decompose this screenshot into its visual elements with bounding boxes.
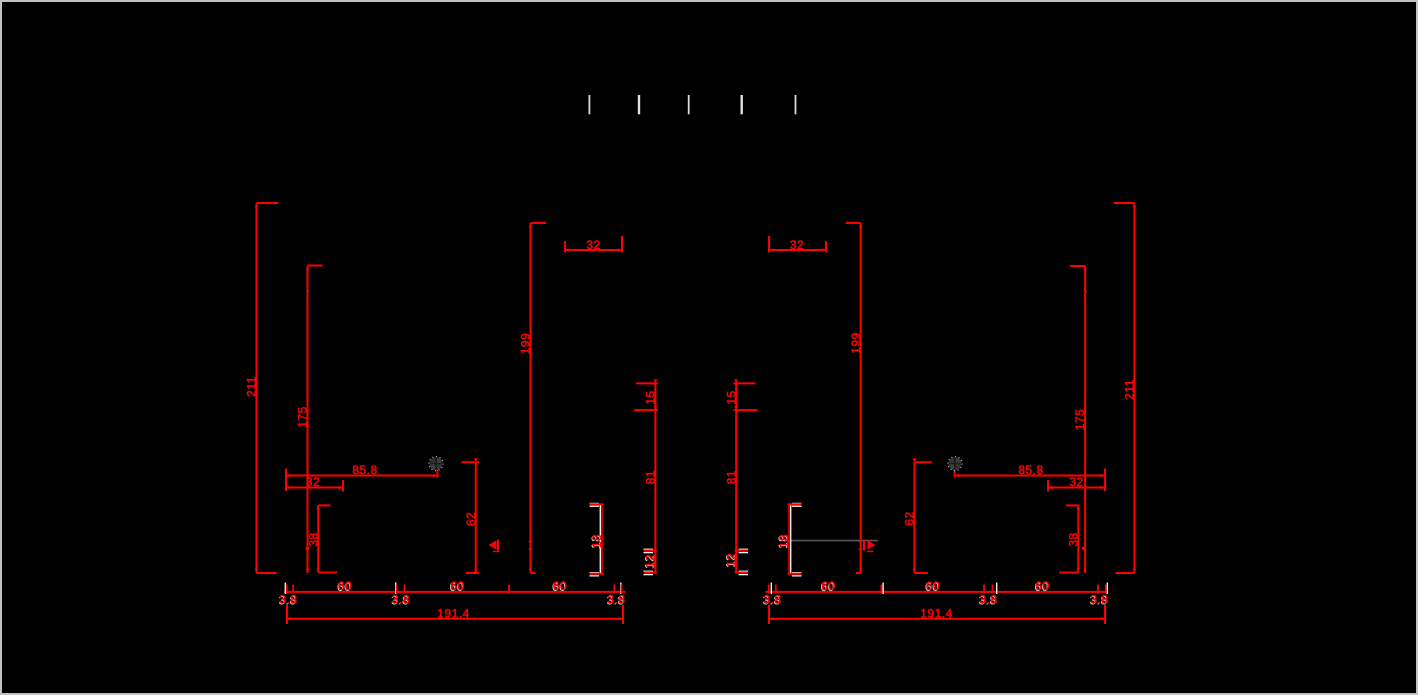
svg-text:199: 199 — [519, 333, 533, 355]
svg-text:211: 211 — [245, 376, 259, 397]
svg-text:60: 60 — [338, 579, 352, 593]
svg-text:199: 199 — [849, 332, 863, 354]
svg-text:32: 32 — [790, 238, 804, 252]
svg-text:60: 60 — [553, 579, 567, 593]
svg-text:85.8: 85.8 — [352, 463, 377, 477]
svg-text:211: 211 — [1123, 379, 1137, 400]
svg-text:15: 15 — [724, 390, 738, 404]
svg-text:60: 60 — [450, 579, 464, 593]
svg-text:38: 38 — [1066, 532, 1080, 546]
svg-text:3.8: 3.8 — [392, 593, 410, 607]
svg-text:3.8: 3.8 — [979, 593, 997, 607]
svg-text:15: 15 — [644, 390, 658, 404]
svg-text:3.8: 3.8 — [279, 593, 297, 607]
svg-text:32: 32 — [306, 475, 320, 489]
svg-text:60: 60 — [1035, 579, 1049, 593]
svg-text:62: 62 — [903, 511, 917, 525]
svg-text:12: 12 — [724, 553, 738, 567]
svg-text:32: 32 — [1069, 475, 1083, 489]
svg-text:81: 81 — [724, 470, 738, 484]
svg-text:38: 38 — [306, 532, 320, 546]
svg-text:62: 62 — [464, 512, 478, 526]
svg-text:191.4: 191.4 — [437, 607, 470, 621]
svg-text:60: 60 — [821, 579, 835, 593]
svg-text:191.4: 191.4 — [920, 607, 953, 621]
svg-text:175: 175 — [296, 406, 310, 428]
svg-text:3.8: 3.8 — [763, 593, 781, 607]
svg-text:60: 60 — [926, 579, 940, 593]
svg-text:18: 18 — [777, 534, 791, 548]
svg-text:18: 18 — [590, 534, 604, 548]
svg-text:81: 81 — [644, 470, 658, 484]
svg-text:12: 12 — [644, 554, 658, 568]
svg-text:175: 175 — [1073, 409, 1087, 431]
svg-text:3.8: 3.8 — [1090, 593, 1108, 607]
svg-text:85.8: 85.8 — [1018, 463, 1043, 477]
svg-text:3.8: 3.8 — [607, 593, 625, 607]
svg-text:32: 32 — [586, 238, 600, 252]
